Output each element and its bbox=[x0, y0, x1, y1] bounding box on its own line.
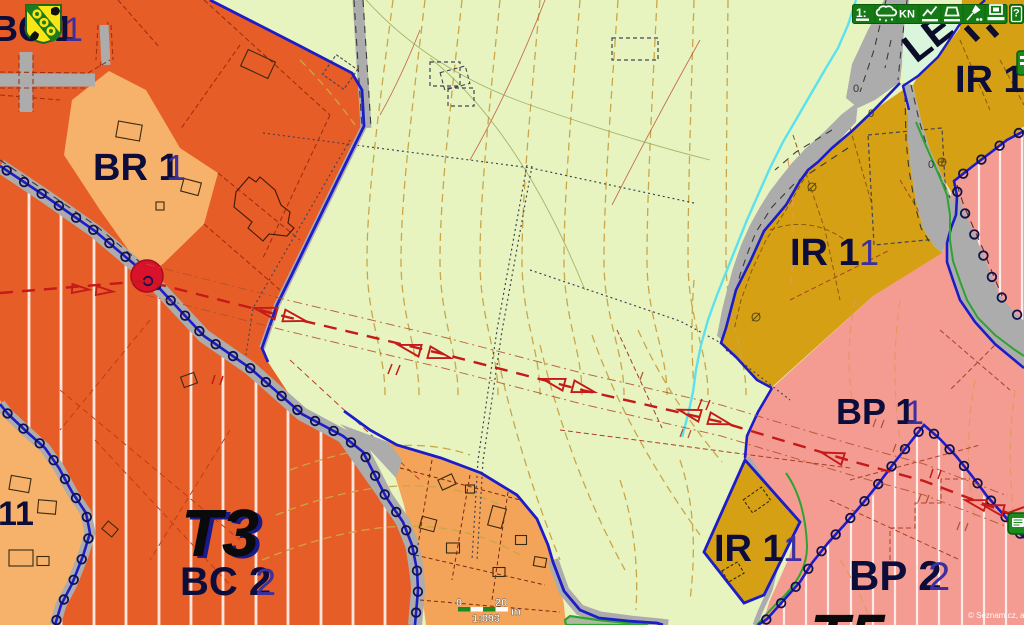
svg-text:KN: KN bbox=[899, 9, 915, 21]
svg-text:1: 1 bbox=[859, 232, 879, 273]
svg-text:1: 1 bbox=[64, 11, 83, 49]
svg-text:1:893: 1:893 bbox=[472, 613, 500, 625]
svg-text:?: ? bbox=[1013, 8, 1020, 20]
svg-text:© Seznam.cz, a.s.: © Seznam.cz, a.s. bbox=[968, 611, 1024, 620]
svg-text:1: 1 bbox=[783, 528, 803, 569]
svg-text:0: 0 bbox=[928, 159, 934, 171]
svg-text:11: 11 bbox=[0, 495, 34, 533]
svg-text:1: 1 bbox=[905, 394, 924, 432]
svg-text:BP 1: BP 1 bbox=[836, 391, 915, 432]
svg-text:T3: T3 bbox=[181, 496, 259, 571]
svg-text:0: 0 bbox=[868, 108, 874, 120]
svg-text:IR 1: IR 1 bbox=[955, 59, 1024, 101]
svg-text:2: 2 bbox=[928, 555, 950, 599]
svg-text:m: m bbox=[511, 606, 521, 618]
svg-text:IR 1: IR 1 bbox=[714, 528, 784, 570]
svg-text:1:: 1: bbox=[856, 6, 867, 20]
svg-text:T5: T5 bbox=[810, 601, 886, 625]
svg-text:0: 0 bbox=[853, 83, 859, 95]
svg-text:1: 1 bbox=[166, 147, 186, 188]
svg-text:IR 1: IR 1 bbox=[790, 232, 860, 274]
